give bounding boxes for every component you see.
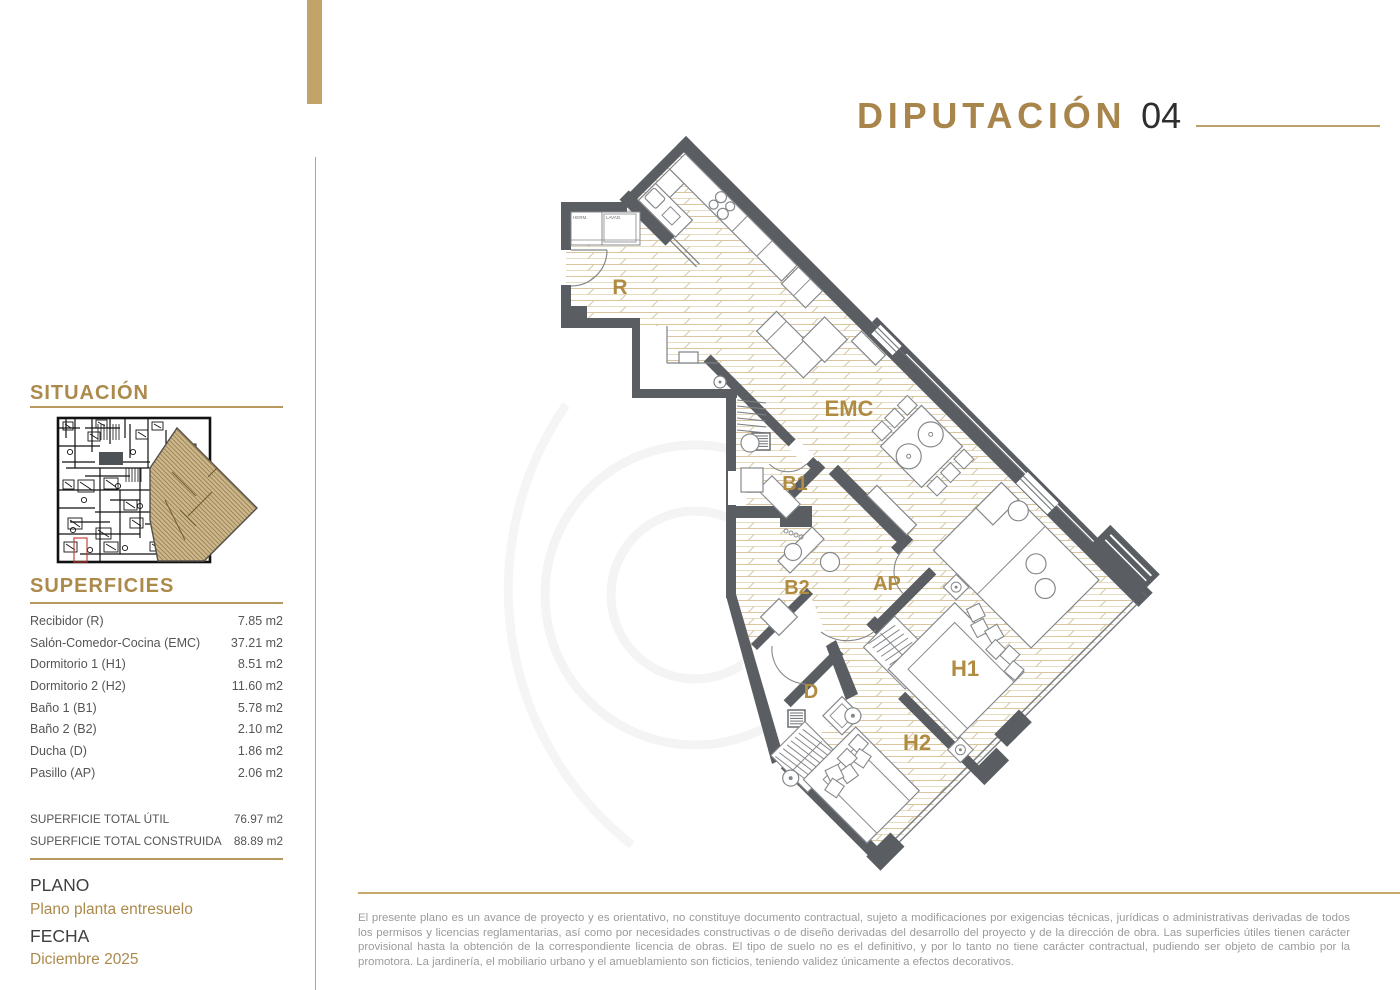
svg-text:H2: H2 bbox=[903, 730, 931, 755]
svg-text:LAVAD.: LAVAD. bbox=[606, 215, 621, 220]
svg-text:B2: B2 bbox=[784, 577, 810, 599]
svg-text:B1: B1 bbox=[782, 473, 808, 495]
svg-text:H1: H1 bbox=[951, 656, 979, 681]
svg-text:AP: AP bbox=[873, 573, 901, 595]
svg-text:R: R bbox=[612, 276, 627, 299]
svg-text:D: D bbox=[804, 681, 818, 703]
svg-text:HERM.: HERM. bbox=[573, 215, 588, 220]
svg-text:EMC: EMC bbox=[825, 396, 874, 421]
